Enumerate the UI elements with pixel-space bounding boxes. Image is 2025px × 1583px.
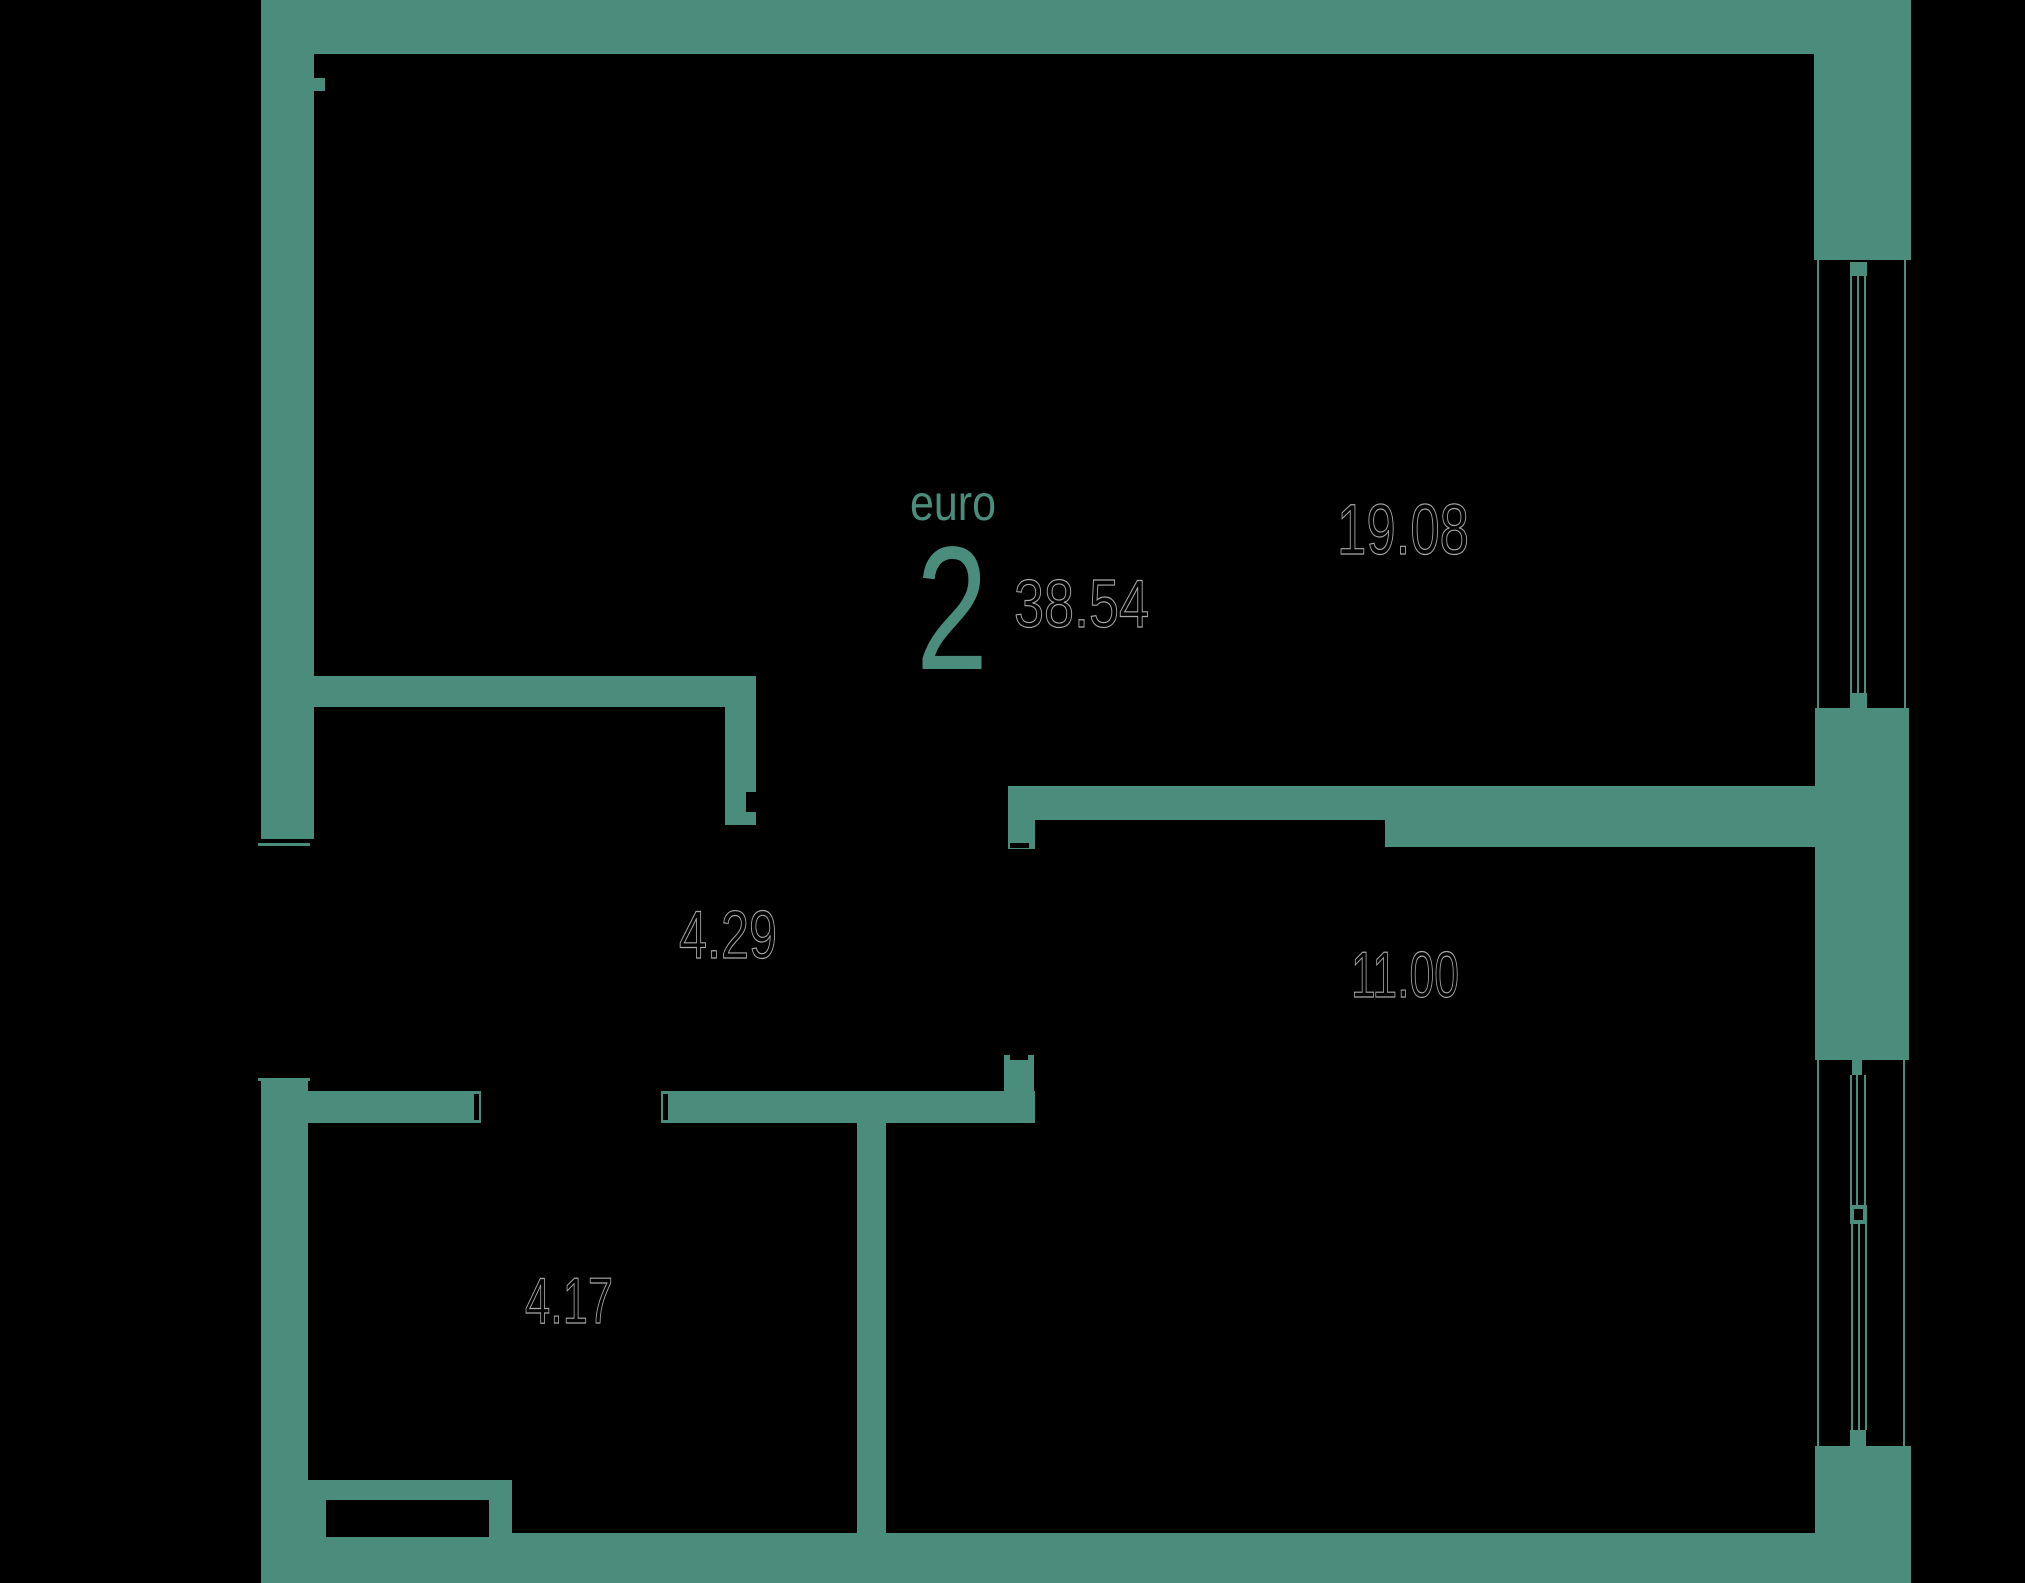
svg-text:11.00: 11.00 bbox=[1351, 938, 1459, 1011]
svg-text:4.17: 4.17 bbox=[525, 1264, 613, 1337]
svg-text:2: 2 bbox=[916, 511, 988, 707]
svg-text:4.29: 4.29 bbox=[679, 897, 777, 973]
svg-text:19.08: 19.08 bbox=[1337, 491, 1469, 570]
svg-text:38.54: 38.54 bbox=[1014, 566, 1149, 642]
